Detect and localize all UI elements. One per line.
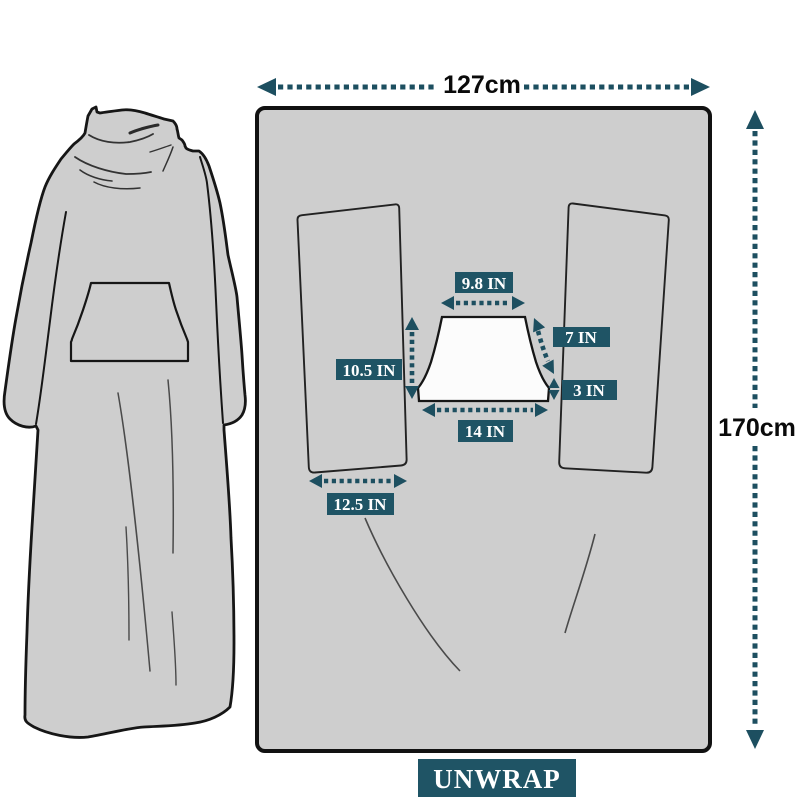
svg-text:127cm: 127cm xyxy=(443,71,521,99)
svg-text:12.5 IN: 12.5 IN xyxy=(334,495,388,514)
svg-text:170cm: 170cm xyxy=(718,414,796,442)
svg-text:3 IN: 3 IN xyxy=(573,381,605,400)
svg-text:14 IN: 14 IN xyxy=(465,422,506,441)
svg-text:9.8 IN: 9.8 IN xyxy=(462,274,507,293)
svg-text:7 IN: 7 IN xyxy=(565,328,597,347)
svg-text:10.5 IN: 10.5 IN xyxy=(343,361,397,380)
svg-text:UNWRAP: UNWRAP xyxy=(433,764,561,794)
